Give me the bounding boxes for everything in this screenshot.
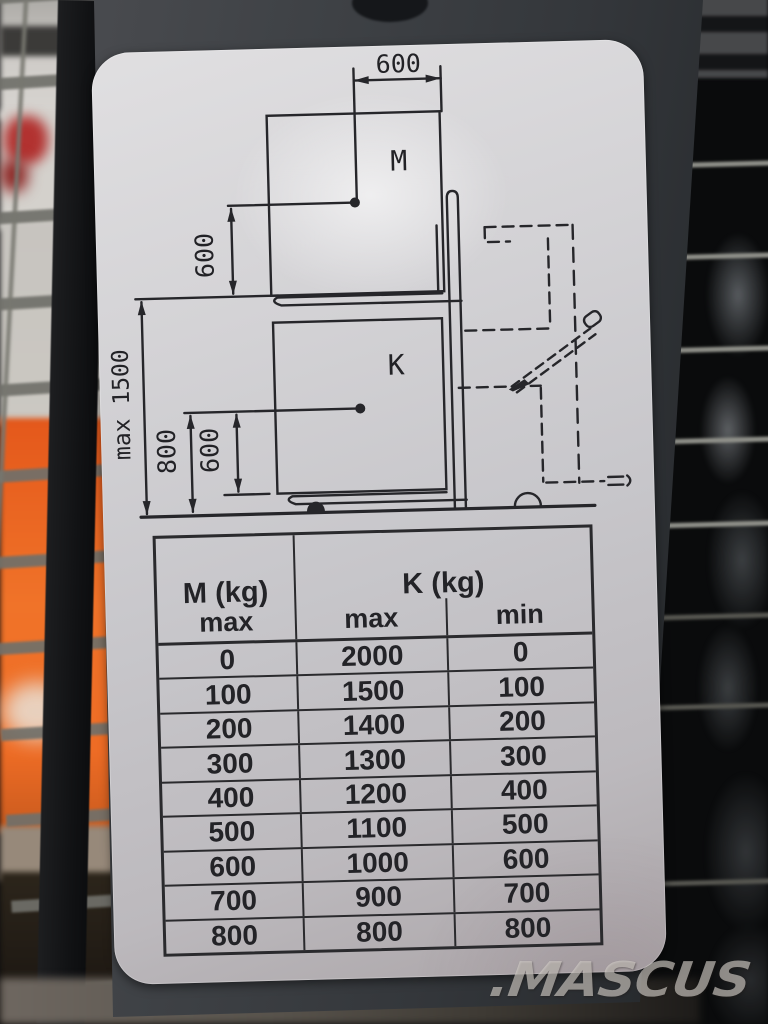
dim-800-label: 800 — [152, 429, 182, 475]
table-cell: 0 — [158, 642, 298, 678]
table-cell: 500 — [163, 814, 303, 850]
header-k-subrow: max min — [296, 594, 592, 639]
lower-fork-and-wheels — [141, 488, 595, 517]
dimension-800: 800 — [151, 415, 197, 514]
upper-load-box: M — [226, 111, 445, 297]
stacker-body-dashed — [455, 224, 631, 490]
dim-lower-600-label: 600 — [195, 427, 225, 473]
table-cell: 1400 — [299, 707, 449, 743]
header-k-column: K (kg) max min — [295, 527, 593, 639]
header-k-sub-max: max — [296, 598, 446, 639]
dimension-upper-height: 600 — [189, 208, 237, 296]
header-m-title: M (kg) — [183, 577, 269, 609]
table-cell: 300 — [161, 745, 301, 781]
table-cell: 500 — [451, 807, 598, 843]
load-diagram: 600 M 600 — [91, 39, 655, 537]
header-m-column: M (kg) max — [156, 535, 298, 643]
dim-upper-height-label: 600 — [190, 233, 220, 279]
capacity-label: 600 M 600 — [91, 39, 667, 985]
table-cell: 200 — [160, 711, 300, 747]
table-cell: 600 — [452, 841, 599, 877]
dimension-max-height: max 1500 — [106, 296, 284, 516]
capacity-table: M (kg) max K (kg) max min 02000010015001… — [153, 524, 604, 956]
table-cell: 100 — [159, 677, 299, 713]
table-cell: 1000 — [303, 845, 453, 881]
table-cell: 0 — [446, 634, 593, 670]
table-cell: 200 — [448, 703, 595, 739]
table-cell: 100 — [447, 669, 594, 705]
table-header: M (kg) max K (kg) max min — [156, 527, 593, 645]
table-cell: 700 — [165, 883, 305, 919]
header-k-sub-min: min — [445, 594, 592, 635]
dimension-top-width: 600 — [353, 48, 444, 201]
table-cell: 800 — [454, 910, 601, 946]
table-cell: 1500 — [298, 673, 448, 709]
tiller-handle-dashed — [507, 309, 605, 393]
header-m-sub-max: max — [199, 607, 254, 636]
table-cell: 700 — [453, 875, 600, 911]
table-cell: 1100 — [302, 810, 452, 846]
capacity-table-body: 0200001001500100200140020030013003004001… — [158, 634, 600, 953]
table-cell: 2000 — [297, 638, 447, 674]
table-cell: 300 — [449, 738, 596, 774]
table-cell: 1300 — [300, 742, 450, 778]
table-cell: 900 — [304, 879, 454, 915]
dim-top-width-label: 600 — [375, 49, 421, 79]
mascus-watermark: .MASCUS — [486, 953, 768, 1008]
table-cell: 400 — [450, 772, 597, 808]
table-cell: 1200 — [301, 776, 451, 812]
photo-scene: 600 M 600 — [0, 0, 768, 1024]
table-cell: 800 — [166, 918, 306, 954]
table-cell: 600 — [164, 849, 304, 885]
upper-load-label: M — [390, 144, 408, 177]
mounting-hole — [352, 0, 428, 22]
dim-max-height-label: max 1500 — [108, 349, 137, 460]
table-cell: 400 — [162, 780, 302, 816]
table-cell: 800 — [305, 914, 455, 950]
dimension-lower-600: 600 — [194, 413, 269, 496]
lower-load-label: K — [387, 348, 405, 381]
